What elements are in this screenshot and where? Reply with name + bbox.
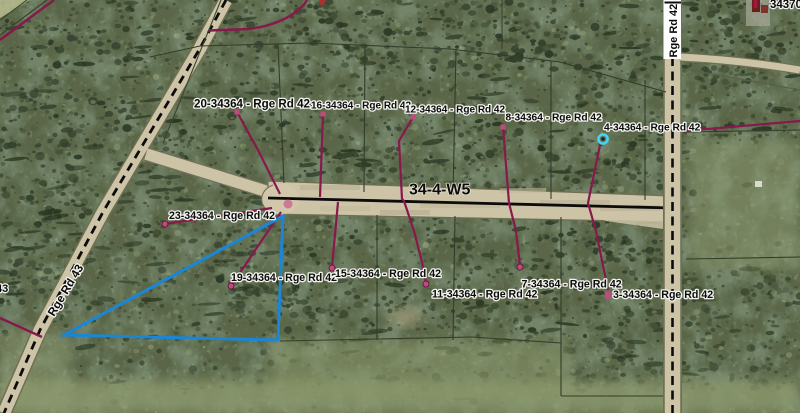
svg-text:16-34364 - Rge Rd 42: 16-34364 - Rge Rd 42 xyxy=(311,101,411,112)
svg-text:43: 43 xyxy=(0,283,8,295)
svg-text:4-34364 - Rge Rd 42: 4-34364 - Rge Rd 42 xyxy=(604,123,701,134)
svg-text:Rge Rd 42: Rge Rd 42 xyxy=(668,4,680,58)
svg-text:3-34364 - Rge Rd 42: 3-34364 - Rge Rd 42 xyxy=(613,289,713,301)
svg-text:7-34364 - Rge Rd 42: 7-34364 - Rge Rd 42 xyxy=(522,279,622,291)
svg-text:34-4-W5: 34-4-W5 xyxy=(409,182,470,199)
svg-text:20-34364 - Rge Rd 42: 20-34364 - Rge Rd 42 xyxy=(194,98,310,111)
svg-text:12-34364 - Rge Rd 42: 12-34364 - Rge Rd 42 xyxy=(405,105,505,116)
svg-text:15-34364 - Rge Rd 42: 15-34364 - Rge Rd 42 xyxy=(335,268,441,280)
svg-text:19-34364 - Rge Rd 42: 19-34364 - Rge Rd 42 xyxy=(231,272,337,284)
svg-text:23-34364 - Rge Rd 42: 23-34364 - Rge Rd 42 xyxy=(169,210,275,222)
svg-text:8-34364 - Rge Rd 42: 8-34364 - Rge Rd 42 xyxy=(506,113,603,124)
svg-text:34370: 34370 xyxy=(770,0,800,11)
